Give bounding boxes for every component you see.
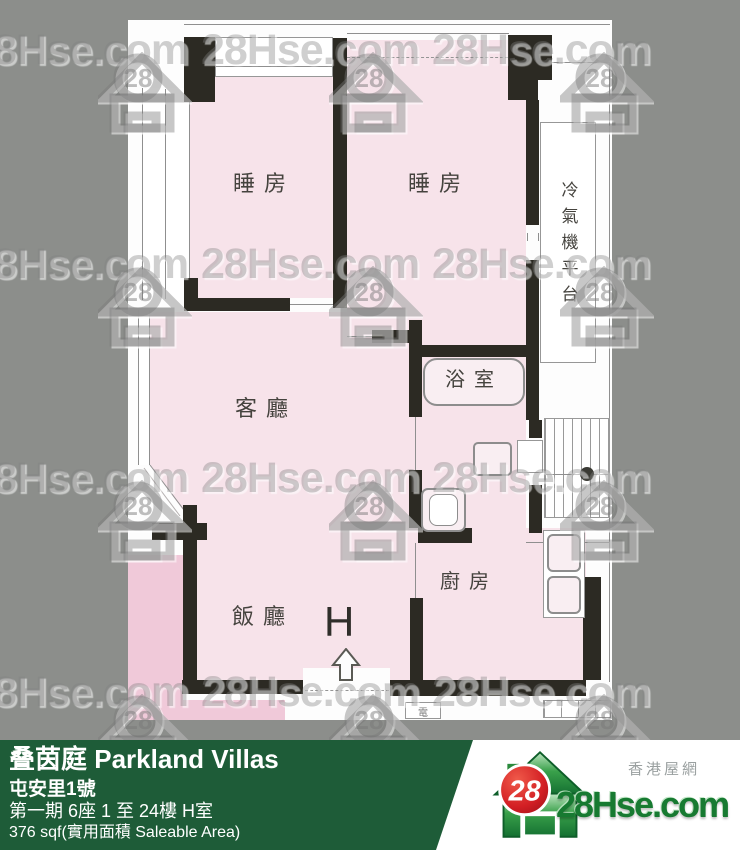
info-bar-green-band: 叠茵庭 Parkland Villas 屯安里1號 第一期 6座 1 至 24樓… [0,740,500,850]
bay-window-bedroom2-top [347,33,509,34]
north-arrow-icon [331,648,361,682]
wall [182,680,303,694]
bay-window-bedroom2-sill [347,57,508,58]
kitchen-sink-2 [547,576,581,614]
bedroom2-label: 睡房 [383,173,495,195]
entrance-door-line [305,690,389,691]
wall [409,320,422,417]
wall [333,38,347,308]
plan-top-line [184,24,610,25]
wall [526,100,539,225]
wall [526,260,539,420]
plan-right-line [609,62,610,682]
info-bar: 叠茵庭 Parkland Villas 屯安里1號 第一期 6座 1 至 24樓… [0,740,740,850]
dining-room-label: 飯廳 [209,606,317,628]
wall [410,598,423,688]
living-room-label: 客廳 [212,398,320,420]
wall [390,680,586,696]
adjacent-unit-floor [128,555,183,720]
door-line-bedroom1 [290,304,333,305]
wall [188,298,290,311]
wall [529,420,542,438]
bathroom-label: 浴室 [434,370,514,390]
window-east-bedroom2 [527,233,539,241]
meter-cabinet-grid [543,700,611,718]
bay-window-bedroom1-sill [216,66,332,67]
logo-site-name-cn: 香港屋網 [628,758,700,779]
floor-plan-page: 冷氣機平台 [0,0,740,850]
wall [538,35,552,80]
wall [583,577,601,680]
ac-platform-label: 冷氣機平台 [542,138,594,353]
wall [508,35,538,100]
floor-plan: 冷氣機平台 [128,20,612,720]
estate-title: 叠茵庭 Parkland Villas [9,746,279,772]
estate-address: 屯安里1號 [9,780,96,799]
stairs-rail-line [544,474,610,475]
stairs [544,418,610,518]
toilet-bowl [429,494,458,526]
door-line-bedroom2 [347,336,372,337]
door-line-bathroom [415,417,416,470]
adjacent-unit-floor-strip [128,700,285,720]
wall [184,37,215,102]
stairs-newel-dot [580,467,594,481]
logo-site-name: 28Hse.com [556,784,728,826]
site-logo: 28 28Hse.com 香港屋網 [492,750,737,850]
estate-block-floor-unit: 第一期 6座 1 至 24樓 H室 [9,802,213,820]
bedroom1-label: 睡房 [208,173,320,195]
bath-cabinet [517,440,543,473]
svg-text:28: 28 [508,775,541,807]
wall [421,345,526,357]
wall [529,485,542,533]
door-line-kitchen [415,543,416,598]
electric-meter-box: 電 [405,702,441,719]
kitchen-sink-1 [547,534,581,572]
estate-area: 376 sqf(實用面積 Saleable Area) [9,825,240,841]
wall [184,278,198,311]
kitchen-label: 廚房 [425,572,513,592]
washbasin [473,442,512,476]
electric-meter-label: 電 [418,708,428,719]
bay-window-bedroom1 [215,37,333,77]
wall [152,523,207,540]
unit-marker: H [324,598,354,646]
